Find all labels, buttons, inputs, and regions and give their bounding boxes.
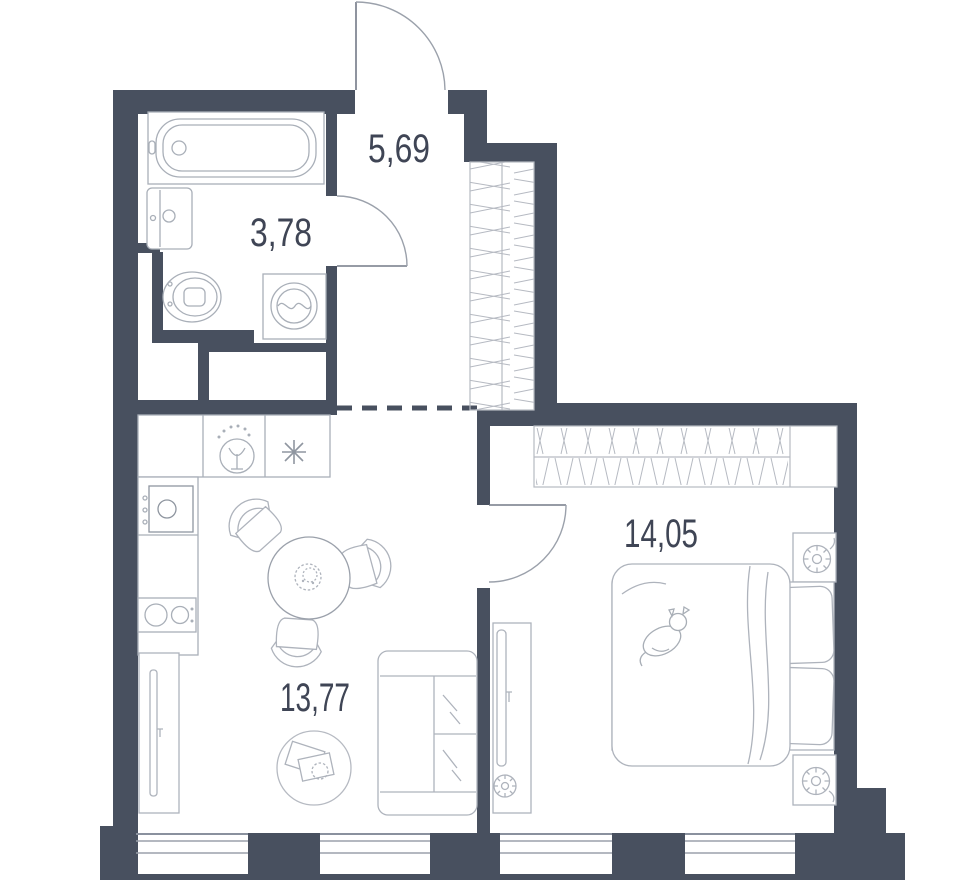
pier-bottom-2 — [248, 833, 320, 880]
window-bedroom-2 — [685, 834, 795, 853]
toilet — [163, 272, 221, 322]
bedroom-wardrobe — [534, 426, 837, 487]
wall-duct-left — [198, 343, 209, 403]
wall-toilet-left — [152, 252, 163, 330]
dining-table — [268, 537, 350, 619]
hob-symbol — [282, 440, 306, 464]
washing-machine — [263, 274, 326, 339]
bedroom-door-swing-arc — [489, 505, 566, 582]
bathroom-door — [337, 196, 407, 266]
bathtub — [148, 112, 324, 184]
wall-bottom-outer-line — [100, 874, 905, 880]
wall-hallway-right — [534, 162, 557, 412]
tv-panel-bedroom — [493, 623, 531, 813]
hallway-wardrobe — [470, 162, 534, 410]
wall-kitchen-separator — [113, 400, 337, 415]
bedroom-area-label: 14,05 — [624, 512, 698, 556]
wall-duct-top — [198, 343, 337, 352]
nightstand-top — [793, 533, 836, 582]
pier-bottom-left — [100, 826, 138, 880]
wall-interior-upper — [477, 410, 490, 505]
wall-entry-right — [448, 90, 487, 114]
cooktop — [138, 598, 196, 632]
tv-living — [150, 670, 157, 796]
wall-bedroom-top — [534, 403, 857, 426]
tv-bedroom — [497, 630, 506, 766]
duvet — [612, 564, 790, 766]
bathroom-area-label: 3,78 — [250, 211, 312, 255]
wall-bathroom-right-upper — [326, 113, 337, 196]
nightstand-bottom — [793, 755, 836, 805]
bedroom-furniture — [493, 533, 836, 813]
wall-under-toilet — [152, 330, 254, 343]
pier-bottom-4 — [612, 833, 685, 880]
wall-interior-lower — [477, 588, 490, 833]
window-living-1 — [136, 834, 248, 853]
bathtub-faucet — [149, 141, 155, 154]
wall-top-left — [113, 90, 355, 114]
sofa — [378, 651, 477, 815]
bathtub-drain — [172, 141, 186, 155]
rug — [277, 731, 351, 805]
wall-bathroom-right-lower — [326, 266, 337, 411]
tv-stand-living — [139, 653, 179, 813]
dining-chair-1 — [219, 489, 288, 558]
hallway-area-label: 5,69 — [368, 127, 430, 171]
kitchen-sink — [143, 486, 193, 532]
bathroom-door-swing-arc — [337, 196, 407, 266]
pier-bottom-right — [795, 833, 905, 880]
pier-bottom-3 — [430, 833, 500, 880]
wall-step-horizontal — [464, 143, 557, 162]
floor-plan-page: 5,69 3,78 14,05 13,77 — [0, 0, 973, 880]
bedroom-plant — [494, 775, 516, 797]
bed — [612, 564, 834, 766]
floor-plan-svg: 5,69 3,78 14,05 13,77 — [0, 0, 973, 880]
window-living-2 — [320, 834, 430, 853]
living-kitchen-area-label: 13,77 — [280, 676, 350, 720]
dining-chair-3 — [270, 617, 323, 668]
window-bedroom-1 — [500, 834, 612, 853]
bathroom-sink — [147, 188, 192, 249]
bedroom-door — [489, 505, 566, 582]
entrance-door-swing-arc — [356, 2, 445, 90]
wall-step-vertical — [464, 113, 487, 145]
entrance-door — [356, 2, 445, 90]
wall-right-bottom-block — [834, 788, 886, 833]
wall-left — [113, 90, 138, 835]
